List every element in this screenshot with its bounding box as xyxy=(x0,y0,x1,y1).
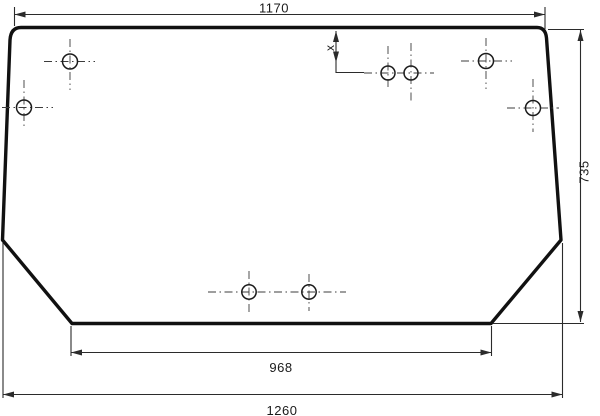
technical-drawing-page: 1170 735 968 1260 x xyxy=(0,0,600,416)
dimension-bottom-edge-width-label: 968 xyxy=(269,360,292,375)
dimension-overall-width-label: 1260 xyxy=(267,403,298,416)
glass-panel-outline xyxy=(3,28,562,324)
hole-centerlines xyxy=(2,38,559,313)
dimension-top-width-label: 1170 xyxy=(259,1,289,16)
dimension-bottom-edge-width xyxy=(71,326,492,356)
dimension-hole-offset-label: x xyxy=(323,45,337,51)
dimension-overall-height xyxy=(493,30,584,324)
mounting-holes xyxy=(17,54,541,300)
glass-panel-drawing: 1170 735 968 1260 x xyxy=(0,0,600,416)
dimension-hole-offset xyxy=(336,31,364,73)
dimension-overall-height-label: 735 xyxy=(577,160,592,183)
